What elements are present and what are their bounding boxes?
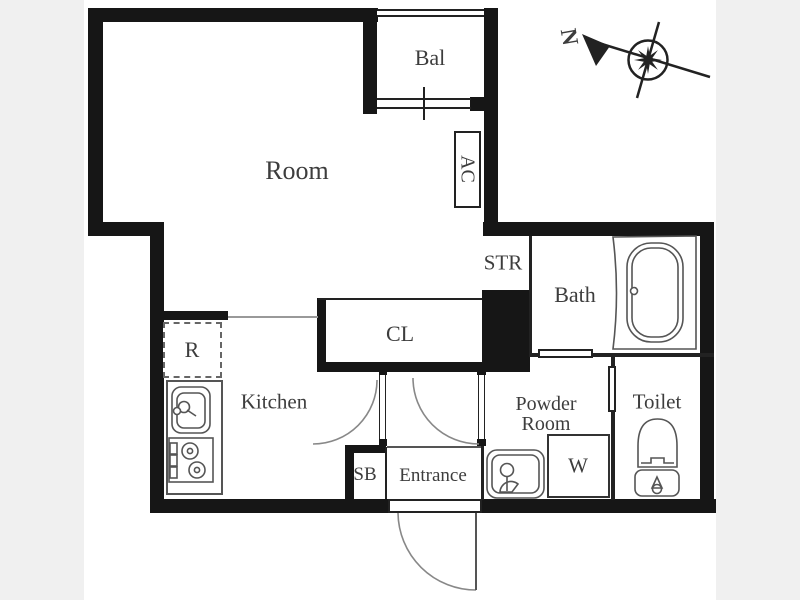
entrance-label: Entrance (399, 465, 467, 487)
toilet-label: Toilet (633, 390, 682, 415)
stove-icon (169, 438, 213, 482)
powder-room-label: Powder Room (515, 394, 576, 434)
hall-door-arc (413, 378, 479, 444)
floor-plan: Room Bal AC STR Bath CL Kitchen R SB Ent… (0, 0, 800, 600)
balcony-label: Bal (415, 45, 446, 71)
powder-room-label-line1: Powder (515, 394, 576, 414)
storage-label: STR (484, 251, 523, 276)
washbasin-icon (487, 450, 544, 498)
kitchen-door-arc (313, 380, 377, 444)
ac-unit-label: AC (456, 155, 479, 183)
shoebox-label: SB (353, 464, 376, 486)
kitchen-label: Kitchen (241, 390, 307, 415)
bathtub-icon (613, 236, 696, 349)
room-label: Room (265, 156, 329, 186)
bath-label: Bath (554, 282, 596, 308)
toilet-icon (635, 419, 679, 496)
fixtures-layer (0, 0, 800, 600)
compass-arrowhead (582, 34, 610, 66)
closet-label: CL (386, 321, 414, 347)
compass-star (634, 46, 662, 74)
kitchen-sink-icon (172, 387, 210, 433)
washing-machine-label: W (568, 454, 588, 479)
entrance-door-arc (398, 513, 476, 590)
powder-room-label-line2: Room (515, 414, 576, 434)
compass-icon (582, 22, 710, 98)
refrigerator-label: R (185, 337, 200, 363)
